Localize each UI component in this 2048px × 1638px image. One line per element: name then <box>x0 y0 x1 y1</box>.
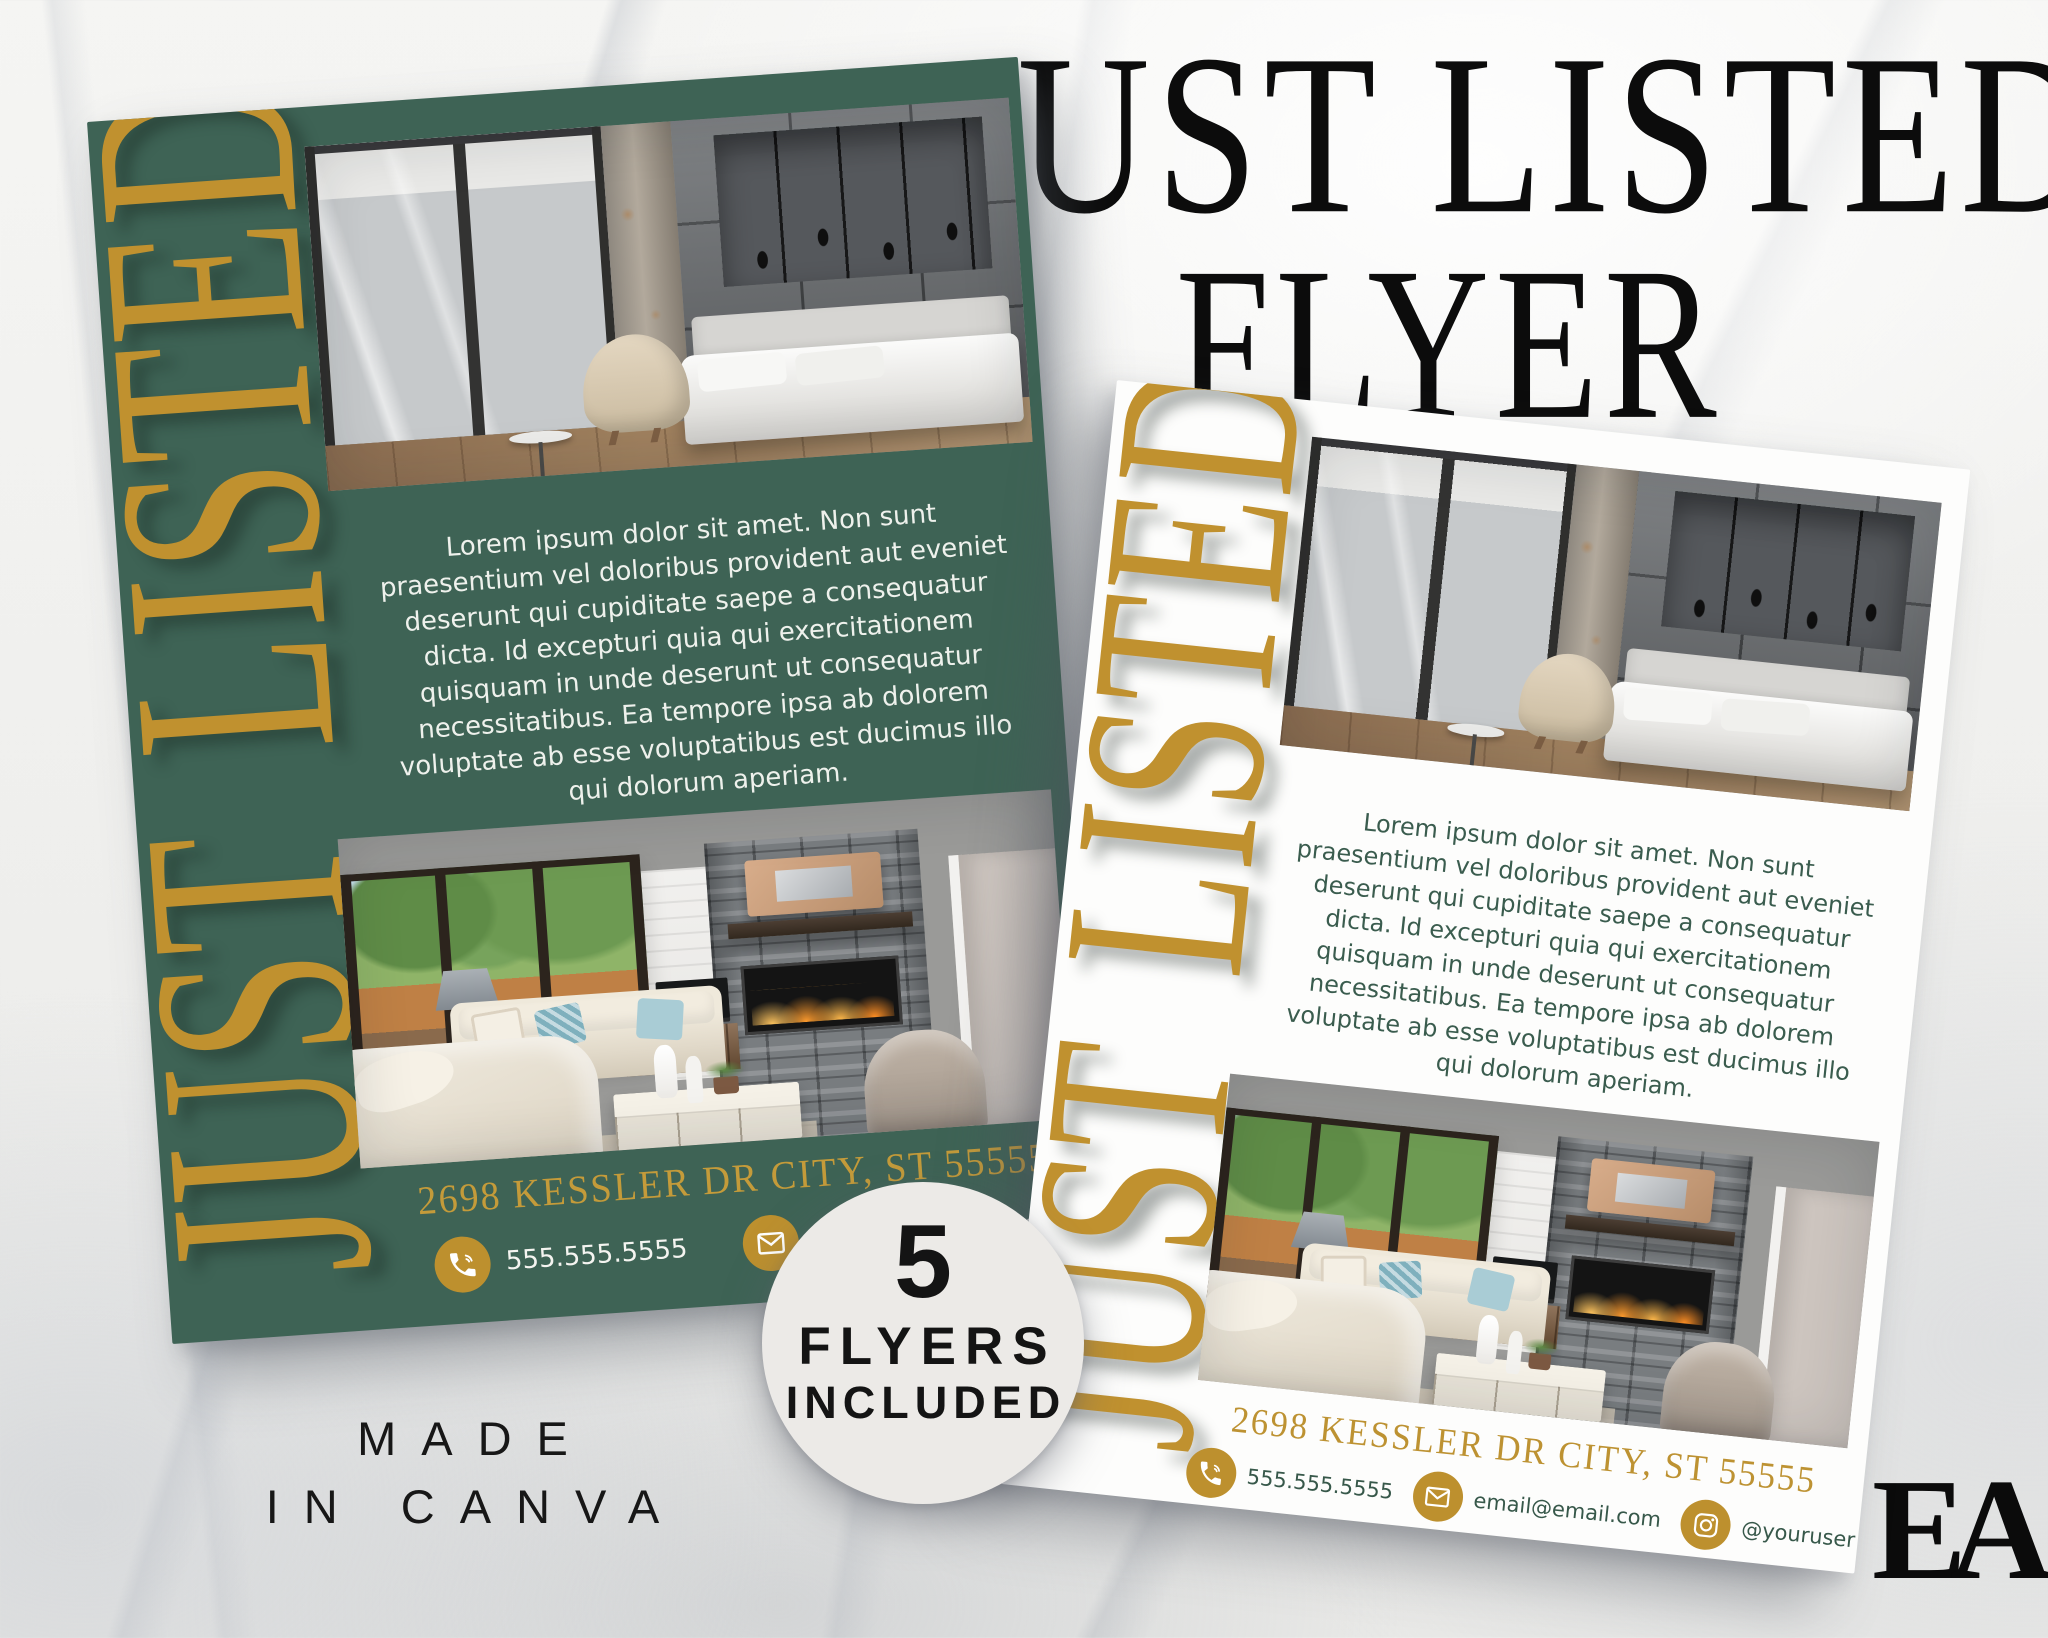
headboard-shape <box>1622 648 1910 727</box>
instagram-icon <box>1678 1497 1733 1552</box>
armchair-shape <box>1658 1337 1779 1447</box>
mantel-beam-shape <box>1565 1214 1735 1246</box>
sectional-sofa-shape <box>338 1033 604 1168</box>
email-icon <box>1410 1469 1465 1524</box>
tile-wall-shape <box>670 98 1029 421</box>
lamp-shade-shape <box>433 967 500 1011</box>
cabinet-shape <box>623 1023 740 1077</box>
pendant-light-niche-shape <box>1661 490 1915 651</box>
email-address: email@email.com <box>1472 1488 1662 1532</box>
pillow-shape <box>1378 1261 1422 1300</box>
tv-shape <box>656 977 730 1021</box>
pillow-shape <box>1321 1256 1367 1296</box>
mantel-beam-shape <box>727 912 913 940</box>
phone-number: 555.555.5555 <box>505 1234 689 1277</box>
phone-number: 555.555.5555 <box>1246 1465 1395 1504</box>
concrete-pillar-shape <box>600 121 691 425</box>
armchair-shape <box>860 1026 989 1140</box>
wood-floor-shape <box>1280 705 1914 811</box>
product-title-line1: JUST LISTED <box>940 30 1958 241</box>
stone-fireplace-wall-shape <box>1529 1136 1753 1435</box>
living-room-photo <box>1198 1074 1880 1449</box>
bed-shape <box>1603 680 1914 792</box>
phone-contact: 555.555.5555 <box>433 1221 689 1295</box>
flyer-body-text: Lorem ipsum dolor sit amet. Non sunt pra… <box>371 491 1030 823</box>
window-wall-shape <box>304 126 621 446</box>
alcove-shape <box>1750 1187 1874 1448</box>
flyer-mockup-white: JUST LISTED Lorem ipsum dolor sit amet. … <box>1001 380 1970 1574</box>
throw-blanket-shape <box>349 1039 461 1120</box>
phone-icon <box>1184 1445 1239 1500</box>
fireplace-shape <box>741 956 903 1036</box>
side-table-shape <box>1446 722 1504 739</box>
lounge-chair-shape <box>580 331 692 435</box>
sofa-shape <box>1296 1242 1551 1348</box>
patio-window-shape <box>1207 1107 1500 1326</box>
ea-brand-logo: EA <box>1872 1457 2035 1602</box>
bedroom-photo <box>304 98 1032 491</box>
cube-coffee-table-shape <box>1432 1352 1606 1422</box>
mantel-mirror-shape <box>744 851 883 916</box>
window-wall-shape <box>1284 437 1577 733</box>
bottle-vases-shape <box>653 1044 678 1098</box>
flyers-included-badge: 5 FLYERS INCLUDED <box>762 1182 1084 1504</box>
pillow-shape <box>636 998 684 1040</box>
tv-shape <box>1489 1256 1558 1300</box>
console-table-shape <box>1619 722 1727 739</box>
wood-floor-shape <box>325 397 1032 491</box>
concrete-pillar-shape <box>1548 464 1639 739</box>
shiplap-wall-shape <box>641 866 727 1082</box>
badge-count: 5 <box>894 1210 952 1314</box>
marble-background: { "header": { "title_line1": "JUST LISTE… <box>0 0 2048 1638</box>
product-title-line2: FLYER <box>958 243 1940 444</box>
flyer-body-text: Lorem ipsum dolor sit amet. Non sunt pra… <box>1265 799 1889 1124</box>
bedroom-photo <box>1280 437 1942 811</box>
made-in-canva-line2: IN CANVA <box>205 1473 745 1541</box>
patio-window-shape <box>340 855 654 1080</box>
fireplace-shape <box>1565 1255 1715 1334</box>
instagram-contact: @youruser <box>1678 1497 1857 1565</box>
wall-ceiling-shape <box>338 789 1074 1168</box>
headboard-shape <box>691 295 1012 372</box>
potted-plant-shape <box>1527 1353 1551 1371</box>
bottle-vases-shape <box>1475 1314 1500 1365</box>
pillow-shape <box>1467 1267 1517 1313</box>
sofa-shape <box>449 985 726 1090</box>
lounge-chair-shape <box>1516 649 1619 745</box>
pendant-light-niche-shape <box>714 117 992 287</box>
wall-ceiling-shape <box>1198 1074 1880 1449</box>
side-table-shape <box>508 429 572 446</box>
shiplap-wall-shape <box>1477 1151 1563 1354</box>
badge-line2: INCLUDED <box>780 1378 1067 1428</box>
stone-fireplace-wall-shape <box>703 828 938 1143</box>
pillow-shape <box>470 1006 527 1057</box>
bed-shape <box>680 332 1024 445</box>
living-room-photo <box>338 789 1074 1168</box>
phone-icon <box>433 1235 493 1295</box>
flyer-mockup-green: JUST LISTED Lorem ipsum dolor sit amet. … <box>87 57 1103 1344</box>
cabinet-shape <box>1452 1296 1560 1350</box>
potted-plant-shape <box>713 1076 739 1094</box>
phone-contact: 555.555.5555 <box>1184 1445 1396 1516</box>
pillow-shape <box>533 1001 587 1050</box>
tile-wall-shape <box>1611 471 1941 771</box>
lamp-shade-shape <box>1291 1210 1353 1253</box>
throw-blanket-shape <box>1203 1274 1300 1336</box>
cube-coffee-table-shape <box>614 1082 803 1151</box>
made-in-canva-line1: MADE <box>205 1405 745 1473</box>
badge-line1: FLYERS <box>789 1318 1056 1376</box>
mantel-mirror-shape <box>1587 1158 1716 1223</box>
console-table-shape <box>697 391 817 406</box>
instagram-handle: @youruser <box>1740 1517 1856 1553</box>
made-in-canva-label: MADE IN CANVA <box>205 1405 745 1541</box>
